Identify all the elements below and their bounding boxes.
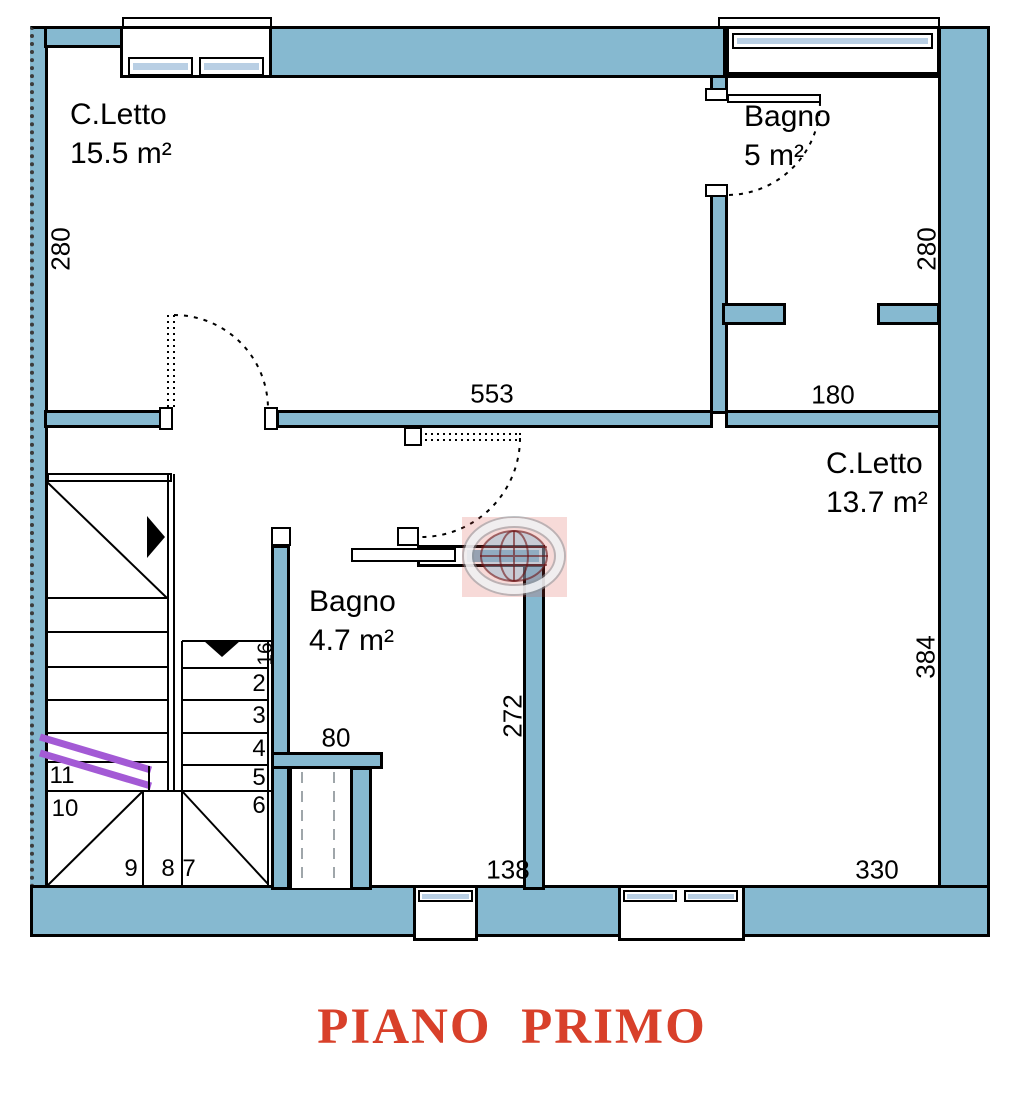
- stair-landing-edge: [47, 473, 172, 482]
- stair-step-5: 5: [252, 764, 265, 792]
- stair-step-10: 10: [52, 795, 79, 823]
- wall-top-main: [269, 26, 726, 78]
- dimension-bedroom2-height: 384: [911, 635, 942, 678]
- pocket-door-wall-fill: [467, 550, 539, 562]
- dimension-stair-tread: 16: [254, 642, 278, 665]
- wall-stair-right: [271, 545, 290, 890]
- floor-plan: C.Letto 15.5 m² Bagno 5 m² C.Letto 13.7 …: [0, 0, 1024, 1116]
- wall-bath1-partition-right: [877, 303, 940, 325]
- door-hall-arc: [421, 438, 520, 537]
- stair-down-arrow-icon: [204, 641, 240, 657]
- stair-wall-jamb: [271, 527, 291, 546]
- dimension-bath2-right: 272: [498, 694, 529, 737]
- stair-step-4: 4: [252, 735, 265, 763]
- wall-bottom-c: [742, 885, 990, 937]
- room-area: 5 m²: [744, 136, 831, 175]
- window-bedroom2-glass-left: [627, 894, 673, 899]
- wall-top-left-corner: [44, 26, 123, 48]
- wall-bottom-b: [475, 885, 621, 937]
- dimension-bedroom2-width: 330: [855, 855, 898, 886]
- door-bedroom1-jamb-right: [264, 407, 278, 430]
- door-bedroom1-arc: [174, 315, 268, 409]
- room-name: Bagno: [309, 582, 396, 621]
- stair-step-8: 8: [161, 855, 174, 883]
- door-bedroom1-jamb-left: [159, 407, 173, 430]
- window-bath2-glass: [422, 894, 469, 899]
- room-name: Bagno: [744, 97, 831, 136]
- dimension-bath1-height: 280: [912, 227, 943, 270]
- pocket-door-jamb: [397, 527, 419, 546]
- wall-mid-center: [276, 410, 713, 428]
- room-name: C.Letto: [826, 444, 928, 483]
- room-area: 4.7 m²: [309, 621, 396, 660]
- room-area: 13.7 m²: [826, 483, 928, 522]
- window-bedroom1-glass-left: [133, 63, 188, 70]
- page-title: PIANO PRIMO: [0, 998, 1024, 1056]
- dimension-bath1-width: 180: [811, 380, 854, 411]
- stair-step-9: 9: [124, 855, 137, 883]
- room-label-bedroom2: C.Letto 13.7 m²: [826, 444, 928, 522]
- door-hall-jamb: [404, 427, 422, 446]
- wall-mid-left: [44, 410, 163, 428]
- wall-exterior-left: [30, 26, 48, 937]
- stair-step-3: 3: [252, 702, 265, 730]
- room-name: C.Letto: [70, 95, 172, 134]
- wall-bath1-partition-left: [722, 303, 786, 325]
- dimension-bath2-wall: 80: [322, 723, 351, 754]
- room-label-bedroom1: C.Letto 15.5 m²: [70, 95, 172, 173]
- door-bath1-jamb-top: [705, 88, 728, 101]
- wall-bottom-a: [30, 885, 416, 937]
- wall-shaft-right: [350, 767, 372, 890]
- door-bath1-jamb-bottom: [705, 184, 728, 197]
- wall-exterior-right: [938, 26, 990, 937]
- stair-step-11: 11: [50, 762, 75, 790]
- room-area: 15.5 m²: [70, 134, 172, 173]
- stair-step-2: 2: [252, 670, 265, 698]
- room-label-bath1: Bagno 5 m²: [744, 97, 831, 175]
- window-bedroom1-glass-right: [204, 63, 259, 70]
- dimension-bedroom1-height: 280: [46, 227, 77, 270]
- window-bedroom2-glass-right: [688, 894, 734, 899]
- staircase-lines: [47, 474, 271, 886]
- stair-step-7: 7: [182, 855, 195, 883]
- dimension-bottom-left: 138: [486, 855, 529, 886]
- pocket-door-leaf: [351, 548, 456, 562]
- window-bath1-inner-line: [728, 72, 938, 75]
- wall-mid-right: [725, 410, 941, 428]
- dimension-bedroom1-width: 553: [470, 379, 513, 410]
- shaft-box: [290, 767, 352, 890]
- stair-up-arrow-icon: [147, 516, 165, 558]
- window-bath1-glass: [737, 38, 928, 44]
- room-label-bath2: Bagno 4.7 m²: [309, 582, 396, 660]
- stair-step-6: 6: [252, 792, 265, 820]
